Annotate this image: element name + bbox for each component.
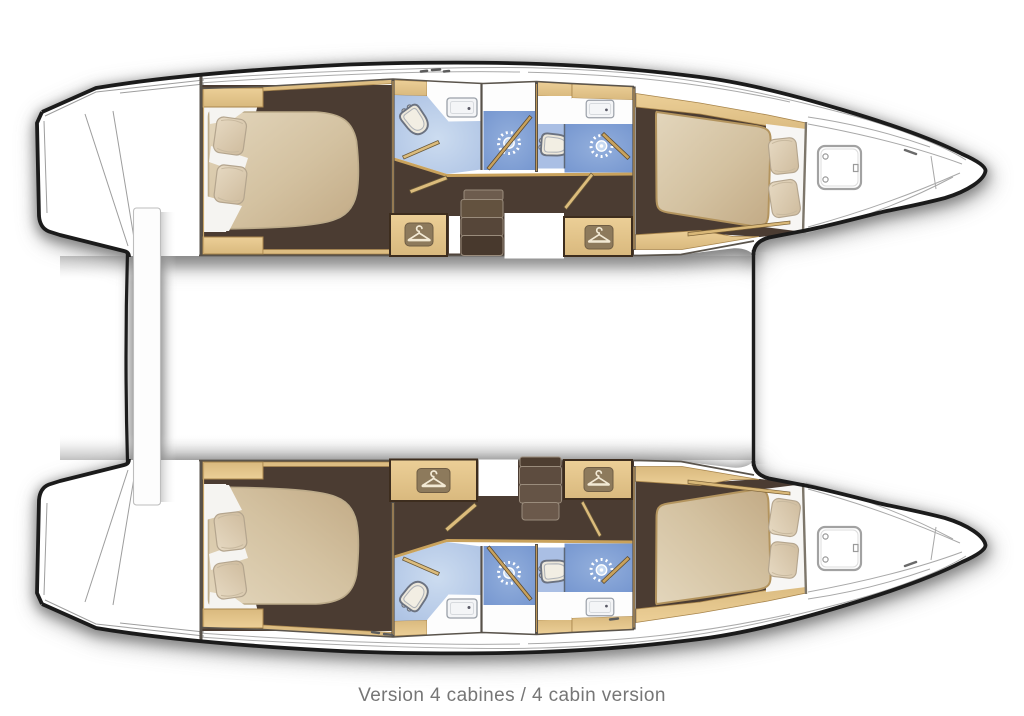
svg-text:Version 4 cabines / 4 cabin ve: Version 4 cabines / 4 cabin version [358,685,666,706]
